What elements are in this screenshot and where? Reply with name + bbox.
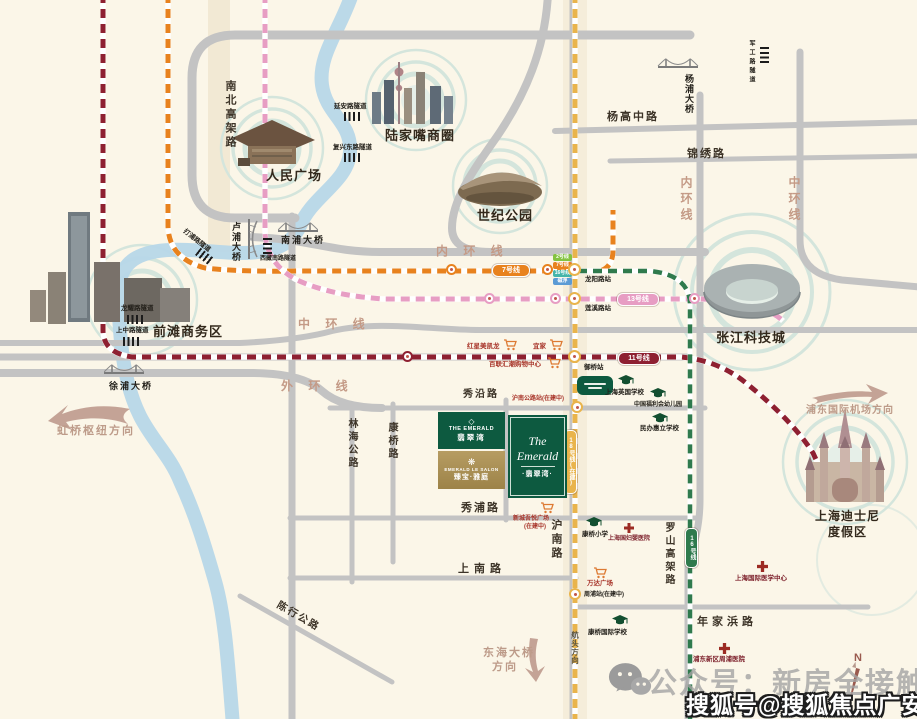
cart-icon [593,567,607,579]
location-map: 延安路隧道 复兴东路隧道 西藏南路隧道 打浦路隧道 龙耀路隧道 上中路隧道 军工… [0,0,917,719]
station-marker [484,293,495,304]
outer-ring-label: 外 环 线 [281,380,354,392]
map-artwork [0,0,917,719]
line16-badge: 16号线 [685,528,698,568]
yangpu-bridge-icon [658,59,698,67]
inner-ring-vertical-label: 内环线 [680,176,692,224]
station-marker [446,264,457,275]
line11-badge: 11号线 [618,352,660,365]
station-marker [550,293,561,304]
station-marker [689,293,700,304]
graduation-cap-icon [650,388,666,399]
tunnel-jungong-icon [760,46,769,63]
cart-icon [503,339,517,351]
line7-badge: 7号线 [492,264,530,277]
tunnel-longyao-label: 龙耀路隧道 [121,306,154,313]
station-hunan-hwy-marker [571,401,583,413]
donghai-direction-label-line1: 东海大桥 [483,648,535,659]
station-hunan-hwy-label: 沪南公路站(在建中) [512,396,564,402]
tunnel-jungong-label: 军工路隧道 [748,40,754,85]
guofuying-hospital-label: 上海国妇婴医院 [608,536,650,542]
qiantan-label: 前滩商务区 [153,325,223,338]
tunnel-fuxing-icon [344,153,361,162]
graduation-cap-icon [618,375,634,386]
tunnel-shangzhong-icon [123,337,140,346]
ikea-label: 宜家 [533,344,546,351]
station-longyang-label: 龙阳路站 [585,277,611,284]
hospital-cross-icon [719,643,730,654]
project-logo-emerald-main: The Emerald ·翡翠湾· [508,415,567,498]
flourish-divider [521,466,555,467]
line13-badge: 13号线 [617,293,659,306]
wechat-icon [608,662,652,699]
cart-icon [547,357,561,369]
flower-icon: ❋ [468,458,476,467]
bailian-label: 百联汇潮购物中心 [489,362,541,369]
inner-ring-label: 内 环 线 [436,245,509,257]
project-logo1-cn: 翡翠湾 [457,432,486,443]
intl-medical-label: 上海国际医学中心 [735,576,787,583]
road-nianjiabang-label: 年家浜路 [697,617,757,628]
yangpu-bridge-label: 杨浦大桥 [684,74,693,114]
station-marker [542,264,553,275]
station-lianxi-marker [568,292,581,305]
zhangjiang-label: 张江科技城 [716,331,786,344]
airport-direction-label: 浦东国际机场方向 [806,406,894,416]
intl-school-label: 康桥国际学校 [588,630,627,637]
graduation-cap-icon [612,615,628,626]
huili-school-label: 民办惠立学校 [640,426,679,433]
road-xiuyan-label: 秀沿路 [463,390,499,400]
hongqiao-direction-label: 虹桥枢纽方向 [57,426,135,437]
tunnel-shangzhong-label: 上中路隧道 [116,328,149,335]
road-shangnan-label: 上南路 [458,564,506,575]
road-linhai-label: 林海公路 [346,418,356,470]
station-lianxi-label: 莲溪路站 [585,306,611,313]
cart-icon [540,502,554,514]
project-logo3-en: The Emerald [508,434,567,464]
station-longyang-marker [568,263,581,276]
project-logo2-cn: 臻宝·雅庭 [454,472,489,482]
project-logo-emerald-small: ◇ THE EMERALD 翡翠湾 [438,412,505,449]
british-school-label: 上海英国学校 [605,390,644,397]
cart-icon [549,339,563,351]
compass-n-label: N [854,652,862,664]
road-hunan-label: 沪南路 [550,519,561,561]
peoples-square-label: 人民广场 [266,169,322,182]
project-logo-le-salon: ❋ EMERALD LE SALON 臻宝·雅庭 [438,451,505,489]
xupu-bridge-label: 徐浦大桥 [109,382,153,391]
hangtou-direction-label: 航头方向 [571,631,579,665]
tunnel-xizang-icon [263,237,272,254]
chip-line2: 2号线 [553,254,572,261]
hospital-cross-icon [757,561,768,572]
wuyue-label-line2: (在建中) [524,524,546,530]
tunnel-yanan-icon [344,112,361,121]
tunnel-fuxing-label: 复兴东路隧道 [333,145,372,152]
welfare-kindergarten-label: 中国福利会幼儿园 [634,402,682,408]
road-kangqiao-label: 康桥路 [386,422,396,461]
wanda-label: 万达广场 [587,581,613,588]
zhangjiang-art [704,264,800,318]
lupu-bridge-label: 卢浦大桥 [231,222,240,262]
century-park-label: 世纪公园 [477,209,533,222]
tunnel-yanan-label: 延安路隧道 [334,104,367,111]
road-luoshan-label: 罗山高架路 [663,522,673,587]
graduation-cap-icon [586,517,602,528]
tunnel-xizang-label: 西藏南路隧道 [260,256,296,262]
graduation-cap-icon [652,413,668,424]
hongxing-label: 红星美凯龙 [467,344,500,351]
station-zhoupu-label: 周浦站(在建中) [584,592,624,598]
nanpu-bridge-label: 南浦大桥 [281,236,325,245]
kangqiao-primary-label: 康桥小学 [582,532,608,539]
project-logo3-cn: ·翡翠湾· [522,469,553,479]
mid-ring-vertical-label: 中环线 [788,176,800,224]
chip-maglev: 磁浮 [553,278,572,285]
metro-line-16 [578,271,690,719]
station-yuqiao-label: 御桥站 [584,365,604,372]
lujiazui-label: 陆家嘴商圈 [385,129,455,142]
station-marker [402,351,413,362]
donghai-direction-label-line2: 方向 [492,662,518,673]
station-yuqiao-marker [568,350,581,363]
station-zhoupu-marker [569,588,581,600]
mid-ring-label: 中 环 线 [298,318,371,330]
donghai-arrow [525,638,545,682]
tunnel-longyao-icon [127,315,144,324]
wuyue-label-line1: 新城吾悦广场 [513,516,549,522]
road-jinxiu-label: 锦绣路 [687,149,726,160]
sohu-watermark: 搜狐号@搜狐焦点广安站 [686,686,917,719]
road-xiupu-label: 秀浦路 [461,503,500,514]
disney-label-line1: 上海迪士尼 [815,510,880,522]
hospital-cross-icon [624,523,634,533]
peoples-square-art [232,120,315,166]
road-nanbei-label: 南北高架路 [224,80,235,150]
diamond-icon: ◇ [468,418,474,426]
road-yanggao-label: 杨高中路 [607,112,659,123]
disney-label-line2: 度假区 [828,526,867,538]
